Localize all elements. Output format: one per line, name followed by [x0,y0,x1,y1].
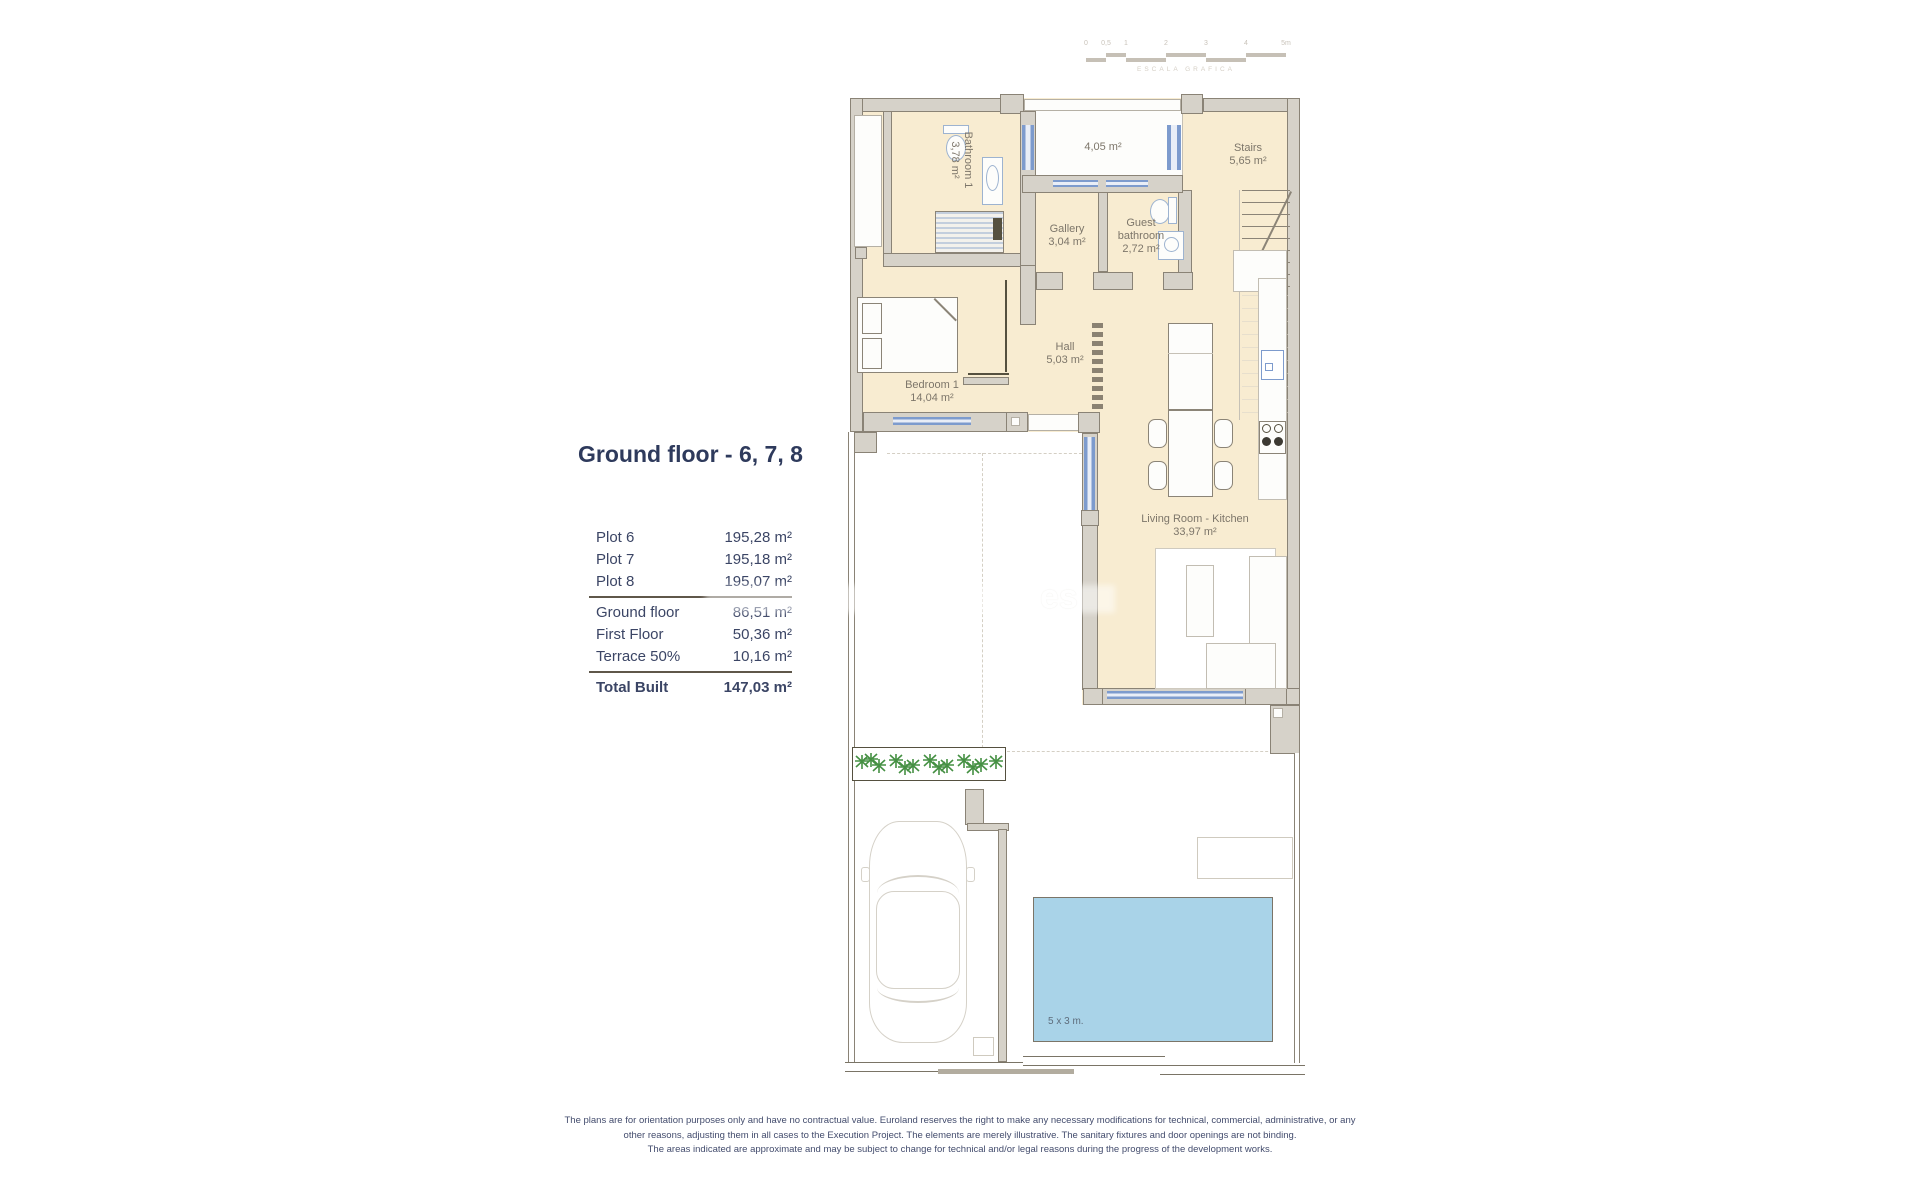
stairs-rail [1239,190,1240,420]
row-value: 147,03 m² [724,677,792,699]
wall [883,111,892,259]
wall-open-top [1024,99,1181,111]
chair [1214,461,1233,490]
wardrobe [854,115,882,247]
room-label-bedroom1: Bedroom 1 14,04 m² [887,379,977,405]
wall-pillar [1081,510,1099,526]
disclaimer-line: The plans are for orientation purposes o… [460,1114,1460,1129]
scale-tick-label: 3 [1204,40,1208,47]
room-area: 14,04 m² [887,392,977,405]
row-label: Total Built [596,677,668,699]
disclaimer-line: other reasons, adjusting them in all cas… [460,1129,1460,1144]
patio-floor [1022,100,1183,178]
car-mirror [966,867,975,882]
table-row: First Floor 50,36 m² [596,624,792,646]
window [1084,437,1095,510]
scale-tick-label: 5m [1281,40,1291,47]
plot-boundary [1023,1056,1165,1066]
room-label-guest-bathroom: Guest bathroom 2,72 m² [1109,217,1173,256]
kitchen-island [1168,323,1213,410]
gate-post [973,1037,994,1056]
window [1022,125,1034,170]
scale-segment [1126,53,1166,62]
room-name: Bedroom 1 [887,379,977,392]
burner-icon [1274,424,1283,433]
garden-wall [998,829,1007,1062]
room-label-patio: 4,05 m² [1073,141,1133,154]
sunbed [1197,837,1293,879]
room-label-gallery: Gallery 3,04 m² [1037,223,1097,249]
wall [1163,272,1193,290]
car-mirror [861,867,870,882]
scale-caption: ESCALA GRAFICA [1086,66,1286,73]
garden-guide [1007,751,1288,752]
wall-corner [1245,688,1287,705]
window [1167,125,1181,170]
car-rear-window [877,973,959,1003]
coffee-table [1186,565,1214,637]
room-name: Guest bathroom [1109,217,1173,243]
room-name: Living Room - Kitchen [1115,513,1275,526]
dining-table [1168,410,1213,497]
disclaimer-line: The areas indicated are approximate and … [460,1143,1460,1158]
row-value: 50,36 m² [733,624,792,646]
pool-label: 5 x 3 m. [1048,1016,1084,1027]
pool: 5 x 3 m. [1033,897,1273,1042]
plants-icon [853,748,1005,780]
scale-segment [1206,53,1246,62]
window [893,417,971,425]
row-label: First Floor [596,624,664,646]
wall-pillar [1181,94,1203,114]
scale-bar-segments [1086,53,1286,62]
entrance-sill [938,1069,1074,1074]
wall [850,98,1002,112]
island-line [1168,353,1213,354]
table-row: Plot 7 195,18 m² [596,549,792,571]
wall-corner [1078,412,1100,433]
row-label: Ground floor [596,602,679,624]
burner-icon [1262,424,1271,433]
row-label: Plot 7 [596,549,634,571]
scale-tick-label: 2 [1164,40,1168,47]
room-name: Gallery [1037,223,1097,236]
kitchen-counter [1258,278,1287,500]
wall [1036,272,1063,290]
terrace-guide [887,453,1082,454]
shower-screen-icon [993,218,1002,240]
pillow [862,338,882,369]
scale-bar: 0 0,5 1 2 3 4 5m ESCALA GRAFICA [1086,40,1286,78]
burner-icon [1262,437,1271,446]
row-value: 195,18 m² [724,549,792,571]
wall [1093,272,1133,290]
wall [965,789,984,825]
scale-tick-label: 0 [1084,40,1088,47]
scale-segment [1106,53,1126,62]
chair [1148,461,1167,490]
room-label-bathroom1: Bathroom 1 3,78 m² [948,124,974,196]
wall [1203,98,1300,112]
room-area: 2,72 m² [1109,243,1173,256]
wall [883,253,1036,267]
table-separator [589,671,792,673]
row-label: Terrace 50% [596,646,680,668]
scale-segment [1166,53,1206,62]
plot-boundary [1294,753,1300,1063]
watermark: es [1040,578,1120,617]
door-leaf [1005,280,1007,372]
wall [1098,190,1108,272]
row-label: Plot 6 [596,527,634,549]
scale-tick-label: 4 [1244,40,1248,47]
room-area: 4,05 m² [1073,141,1133,154]
area-table: Plot 6 195,28 m² Plot 7 195,18 m² Plot 8… [596,527,792,699]
wall [1022,175,1183,193]
door-leaf [968,373,1009,375]
room-name: Bathroom 1 [961,124,974,196]
room-label-hall: Hall 5,03 m² [1035,341,1095,367]
scale-tick-label: 0,5 [1101,40,1111,47]
room-area: 5,65 m² [1218,155,1278,168]
room-label-stairs: Stairs 5,65 m² [1218,142,1278,168]
room-area: 33,97 m² [1115,526,1275,539]
sofa [1206,643,1276,689]
sink-basin-icon [986,165,999,191]
room-label-living-kitchen: Living Room - Kitchen 33,97 m² [1115,513,1275,539]
chair [1214,419,1233,448]
scale-segment [1246,53,1286,62]
room-area: 3,04 m² [1037,236,1097,249]
burner-icon [1274,437,1283,446]
room-name: Stairs [1218,142,1278,155]
table-row: Terrace 50% 10,16 m² [596,646,792,668]
kitchen-sink-tap [1265,363,1273,371]
table-total-row: Total Built 147,03 m² [596,677,792,699]
scale-segment [1086,53,1106,62]
scale-tick-label: 1 [1124,40,1128,47]
glass-door [1028,414,1079,431]
wall [1020,265,1036,325]
table-row: Plot 6 195,28 m² [596,527,792,549]
room-name: Hall [1035,341,1095,354]
wall-corner [1083,688,1103,705]
page-title: Ground floor - 6, 7, 8 [578,441,803,468]
wall [855,247,867,259]
row-value: 195,28 m² [724,527,792,549]
room-area: 5,03 m² [1035,354,1095,367]
plot-boundary [1160,1065,1305,1075]
row-label: Plot 8 [596,571,634,593]
chair [1148,419,1167,448]
window [1053,180,1098,187]
planter [852,747,1006,781]
room-area: 3,78 m² [948,124,961,196]
door-mark [1011,417,1020,426]
pillow [862,303,882,334]
floor-plan-page: 0 0,5 1 2 3 4 5m ESCALA GRAFICA Ground f… [0,0,1920,1200]
window [1107,691,1243,699]
disclaimer: The plans are for orientation purposes o… [460,1114,1460,1158]
window [1106,180,1148,187]
door-mark [1273,708,1283,718]
row-value: 10,16 m² [733,646,792,668]
